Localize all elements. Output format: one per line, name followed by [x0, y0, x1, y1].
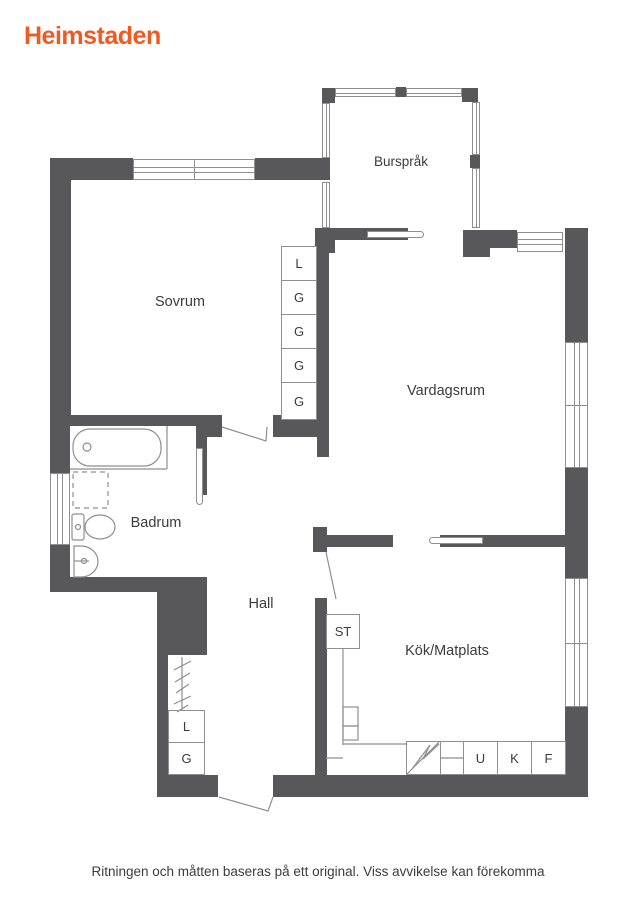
- closet-label: G: [294, 394, 304, 409]
- window-pane-line: [476, 103, 477, 154]
- wall-badrum-south: [50, 577, 207, 592]
- closet-cell: G: [168, 742, 205, 775]
- room-label-sovrum: Sovrum: [120, 294, 240, 310]
- washing-machine-dashed: [73, 472, 108, 508]
- appliance-f: F: [531, 741, 566, 775]
- counter-cell: [440, 741, 464, 775]
- appliance-label: K: [510, 751, 519, 766]
- room-label-hall: Hall: [201, 596, 321, 612]
- wall-south-left-corner: [157, 775, 218, 797]
- wall-kok-stub: [313, 527, 327, 552]
- wall-north-left: [50, 158, 133, 180]
- sliding-door-badrum: [196, 448, 203, 505]
- closet-cell: L: [281, 246, 317, 281]
- closet-label: ST: [335, 624, 352, 639]
- pocket-door-bay: [367, 231, 424, 238]
- appliance-k: K: [497, 741, 532, 775]
- window-badrum-west: [50, 473, 70, 545]
- wall-kok-divider-west: [327, 535, 393, 547]
- wall-west-sovrum: [50, 180, 71, 425]
- bay-post-east-mid: [470, 155, 480, 168]
- sovrum-closet-column: L G G G G: [281, 246, 317, 420]
- room-label-bursprak: Burspråk: [341, 154, 461, 169]
- wall-west-badrum-upper: [50, 425, 70, 473]
- window-pane-lines: [57, 473, 63, 545]
- window-pane-lines: [517, 239, 563, 245]
- bay-window-north-left: [335, 88, 396, 97]
- wall-vardagsrum-west: [317, 240, 329, 457]
- door-swing-entrance: [219, 797, 273, 811]
- coat-rail: [174, 657, 191, 712]
- room-label-kok-matplats: Kök/Matplats: [367, 643, 527, 659]
- window-divider: [566, 405, 587, 406]
- closet-label: L: [295, 256, 302, 271]
- closet-label: L: [183, 719, 190, 734]
- window-divider: [566, 643, 587, 644]
- appliance-u: U: [463, 741, 498, 775]
- closet-label: G: [294, 358, 304, 373]
- appliance-label: U: [476, 751, 485, 766]
- bay-window-west-upper: [322, 103, 330, 158]
- window-ne: [517, 232, 563, 252]
- wall-hall-nw-block: [157, 592, 207, 655]
- wall-hall-west: [157, 655, 168, 775]
- window-divider: [194, 160, 195, 179]
- wall-east-mid: [565, 468, 588, 578]
- window-kok-east: [565, 578, 588, 707]
- window-vardagsrum-east: [565, 342, 588, 468]
- closet-label: G: [294, 324, 304, 339]
- door-swing-kok: [326, 552, 336, 599]
- closet-st: ST: [326, 614, 360, 649]
- room-label-badrum: Badrum: [96, 515, 216, 531]
- bay-window-east-upper: [472, 102, 480, 155]
- wall-sovrum-south-thin: [70, 415, 196, 426]
- bay-post-nw: [322, 88, 335, 103]
- window-sovrum-north: [133, 159, 255, 180]
- bathtub: [70, 426, 167, 469]
- bay-post-north-mid: [396, 87, 406, 97]
- closet-cell: G: [281, 280, 317, 315]
- sink: [74, 546, 98, 577]
- window-pane-line: [326, 183, 327, 227]
- disclaimer-text: Ritningen och måtten baseras på ett orig…: [0, 864, 636, 879]
- closet-label: G: [181, 751, 191, 766]
- wall-south: [273, 775, 588, 797]
- wall-north-right: [255, 158, 330, 180]
- closet-label: G: [294, 290, 304, 305]
- stove-cell: [406, 741, 441, 775]
- wall-east-bottom: [565, 707, 588, 797]
- hall-closet-column: L G: [168, 710, 205, 775]
- closet-cell: G: [281, 348, 317, 383]
- bay-window-east-lower: [472, 168, 480, 228]
- closet-cell: G: [281, 382, 317, 420]
- closet-cell: L: [168, 710, 205, 743]
- wall-ne-step: [463, 248, 490, 257]
- window-pane-line: [336, 93, 395, 94]
- window-pane-line: [407, 93, 461, 94]
- room-label-vardagsrum: Vardagsrum: [376, 383, 516, 399]
- wall-east-top: [565, 228, 588, 342]
- bay-window-north-right: [406, 88, 462, 97]
- wall-ne-block: [463, 230, 517, 248]
- closet-cell: G: [281, 314, 317, 349]
- pocket-door-kok: [429, 537, 483, 544]
- appliance-label: F: [545, 751, 553, 766]
- bay-window-west-lower: [322, 182, 330, 228]
- window-pane-line: [476, 169, 477, 227]
- window-pane-line: [326, 104, 327, 157]
- floor-plan: L G G G G L G ST U K F: [0, 0, 636, 900]
- door-swing-sovrum: [222, 427, 267, 441]
- bay-post-ne: [462, 88, 478, 102]
